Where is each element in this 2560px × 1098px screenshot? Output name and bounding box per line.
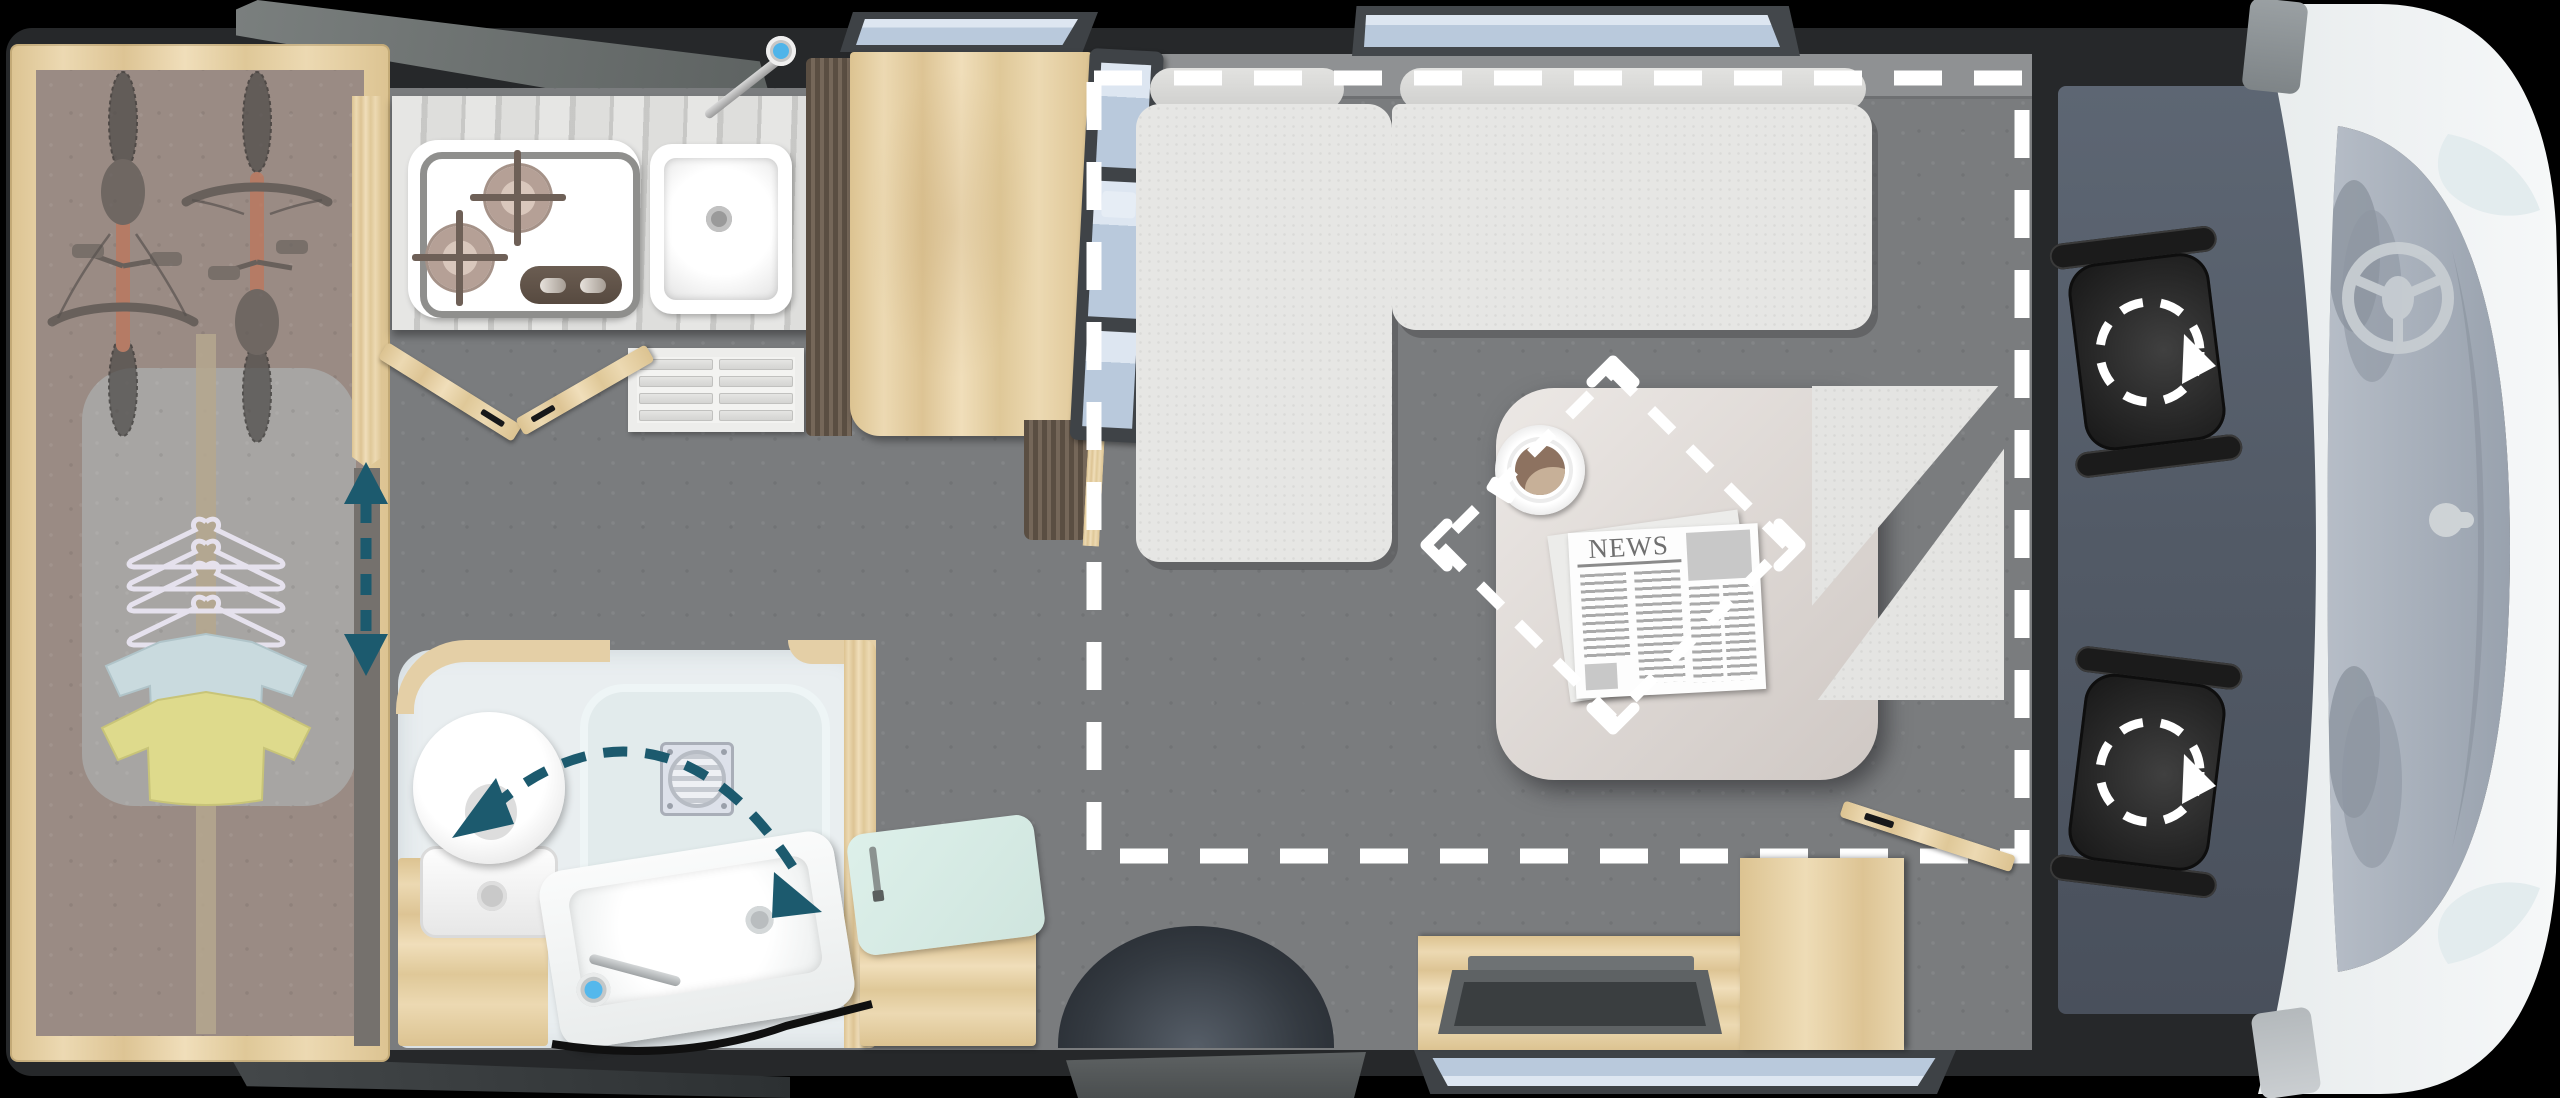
drawer-front bbox=[719, 359, 793, 370]
sliding-door-panel bbox=[352, 96, 382, 468]
cushion-zip-pull bbox=[872, 890, 884, 902]
bench-mint-cushion bbox=[845, 813, 1046, 957]
lounge-window-glass bbox=[1364, 15, 1780, 47]
sideboard-window-glass bbox=[1430, 1058, 1938, 1086]
drawer-front bbox=[719, 376, 793, 387]
garage-contents bbox=[10, 44, 390, 1062]
floorplan-canvas: NEWS bbox=[0, 0, 2560, 1098]
faucet-blue-dot bbox=[773, 43, 789, 59]
sink-drain bbox=[706, 206, 732, 232]
wing-mirror bbox=[2241, 0, 2308, 95]
shower-drain bbox=[660, 742, 734, 816]
hob-knob bbox=[540, 278, 566, 293]
coffee-crema bbox=[1525, 467, 1565, 495]
newspaper-photo bbox=[1585, 663, 1618, 691]
kitchen-sink bbox=[650, 144, 792, 314]
wardrobe-window-frame bbox=[840, 12, 1098, 52]
wardrobe-window-glass bbox=[856, 19, 1078, 45]
burner-cross bbox=[456, 210, 463, 306]
sideboard-tray bbox=[1438, 970, 1722, 1034]
door-glass-reflection bbox=[1101, 191, 1136, 219]
toilet-bowl-shadow bbox=[465, 784, 517, 840]
sofa-bench-long bbox=[1136, 104, 1392, 562]
drain-screw bbox=[667, 749, 673, 755]
sliding-door-track bbox=[354, 468, 380, 1046]
seat-cushion bbox=[2065, 670, 2229, 874]
wing-mirror bbox=[2250, 1006, 2321, 1098]
drawer-front bbox=[639, 393, 713, 404]
sideboard-tray-inner bbox=[1454, 982, 1706, 1026]
drain-screw bbox=[721, 803, 727, 809]
wardrobe-cabinet bbox=[850, 52, 1092, 436]
newspaper-column bbox=[1580, 572, 1630, 660]
headlight-icon bbox=[2438, 882, 2540, 964]
cab-seat bbox=[2052, 225, 2238, 478]
door-handle bbox=[1864, 813, 1895, 829]
dashboard-ghost bbox=[2452, 250, 2484, 848]
wardrobe-side-panel bbox=[806, 58, 852, 436]
gear-shift-icon bbox=[2429, 503, 2474, 537]
drain-grate-icon bbox=[668, 750, 726, 808]
sideboard-tray-bar bbox=[1468, 956, 1694, 972]
newspaper-photo bbox=[1640, 686, 1670, 688]
faucet-knob bbox=[766, 36, 796, 66]
sofa-bench-top bbox=[1392, 104, 1872, 330]
bike-icon bbox=[52, 72, 194, 436]
sideboard-window-frame bbox=[1414, 1050, 1956, 1094]
lounge-window-frame bbox=[1352, 6, 1800, 56]
headlight-icon bbox=[2438, 134, 2540, 216]
basin-faucet-blue-dot bbox=[583, 980, 604, 1001]
door-glass-pane bbox=[1082, 330, 1137, 428]
drain-screw bbox=[667, 803, 673, 809]
newspaper-title: NEWS bbox=[1576, 529, 1682, 567]
cushion-zip bbox=[869, 846, 882, 893]
newspaper-column bbox=[1689, 585, 1724, 682]
drawer-front bbox=[639, 376, 713, 387]
burner-cross bbox=[514, 150, 521, 246]
toilet-bowl bbox=[413, 712, 565, 864]
coffee-icon bbox=[1515, 445, 1565, 495]
hob-knob-pod bbox=[520, 266, 622, 304]
hob-knob bbox=[580, 278, 606, 293]
drain-screw bbox=[721, 749, 727, 755]
drawer-front bbox=[639, 410, 713, 421]
newspaper: NEWS bbox=[1568, 523, 1766, 699]
drawer-front bbox=[719, 393, 793, 404]
newspaper-photo bbox=[1686, 530, 1752, 581]
toilet-flush-button bbox=[477, 881, 507, 911]
garage-box bbox=[10, 44, 390, 1062]
bathroom-wall-left-corner bbox=[396, 640, 610, 714]
newspaper-column bbox=[1723, 583, 1758, 680]
tall-cabinet bbox=[1740, 858, 1904, 1050]
cab-seat bbox=[2052, 645, 2238, 898]
newspaper-column bbox=[1634, 569, 1686, 683]
hob bbox=[408, 140, 640, 318]
windshield-view bbox=[2328, 126, 2511, 972]
door-handle bbox=[530, 404, 556, 422]
shirt-yellow bbox=[102, 692, 310, 805]
seat-cushion bbox=[2065, 250, 2229, 454]
kitchen-drawers-open bbox=[628, 348, 804, 432]
steering-wheel-icon bbox=[2348, 248, 2448, 348]
coffee-cup bbox=[1507, 437, 1573, 503]
drawer-front bbox=[719, 410, 793, 421]
